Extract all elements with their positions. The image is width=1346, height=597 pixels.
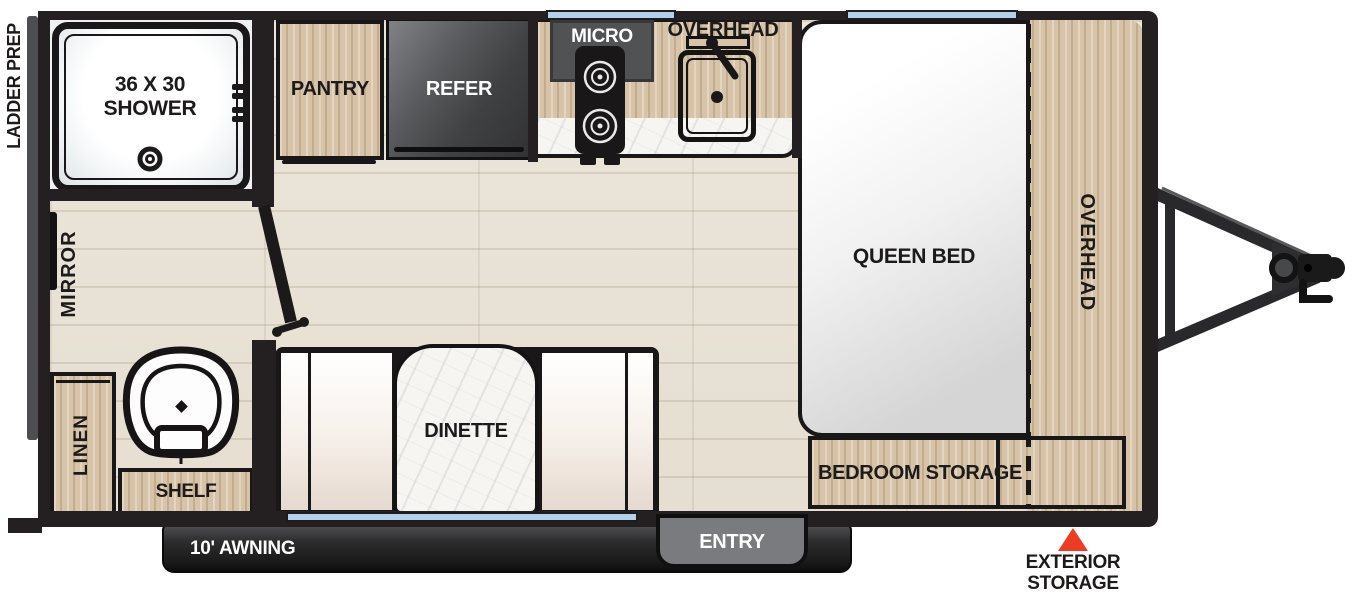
wall-bath-lower [252, 340, 276, 517]
coupler-ball-socket [1323, 257, 1345, 279]
coupler-bolt [1304, 264, 1312, 272]
shower-size-label: 36 X 30 [88, 74, 212, 96]
floorplan-canvas: 36 X 30 SHOWER MIRROR LINEN SHELF PANTRY… [0, 0, 1346, 597]
bedroom-storage-label: BEDROOM STORAGE [810, 462, 1030, 484]
trailer-tongue [1150, 175, 1346, 365]
pantry-handle [282, 160, 376, 164]
ladder-prep-rail [27, 16, 38, 440]
entry-label: ENTRY [656, 530, 808, 554]
awning-label: 10' AWNING [190, 538, 320, 560]
linen-cabinet-trim [56, 380, 110, 383]
rear-bumper-step [8, 518, 42, 533]
tongue-bar-bottom [1152, 277, 1318, 348]
bed-slide-dashed-line [1026, 24, 1031, 508]
exterior-storage-marker [1058, 528, 1088, 551]
tongue-bar-highlight [1162, 188, 1316, 258]
wall-shower-right [252, 20, 274, 207]
overhead-bed-label: OVERHEAD [1077, 177, 1097, 327]
dinette-seat-right [542, 353, 625, 510]
mirror-label: MIRROR [59, 204, 79, 344]
window-dinette [286, 512, 638, 522]
overhead-kitchen-label: OVERHEAD [663, 19, 783, 41]
window-bedroom [846, 10, 1018, 20]
tongue-cross-member [1165, 198, 1175, 342]
refrigerator-label: REFER [408, 77, 510, 101]
shelf-label: SHELF [118, 481, 254, 503]
queen-bed-mattress [798, 20, 1030, 437]
tongue-jack [1272, 256, 1296, 280]
microwave-label: MICRO [552, 26, 652, 48]
window-kitchen [546, 10, 676, 20]
jack-handle [1303, 283, 1329, 299]
exterior-storage-label-line1: EXTERIOR [1003, 552, 1143, 573]
pantry-label: PANTRY [280, 78, 380, 100]
dinette-label: DINETTE [396, 420, 536, 442]
ladder-prep-label: LADDER PREP [4, 0, 24, 176]
linen-label: LINEN [72, 385, 92, 505]
dinette-backrest-right [628, 353, 653, 510]
wall-bed-head [792, 18, 802, 158]
dinette-seat-left [311, 353, 392, 510]
refrigerator-handle [394, 147, 524, 152]
queen-bed-label: QUEEN BED [814, 246, 1014, 268]
kitchen-sink-inner-rim [686, 58, 748, 134]
dinette-backrest-left [281, 353, 308, 510]
wall-below-shower [50, 189, 253, 201]
exterior-storage-label-line2: STORAGE [1003, 573, 1143, 594]
shower-label: SHOWER [88, 98, 212, 120]
wall-refer-counter [528, 18, 538, 162]
wall-right [1142, 11, 1158, 527]
wall-left [38, 11, 50, 527]
